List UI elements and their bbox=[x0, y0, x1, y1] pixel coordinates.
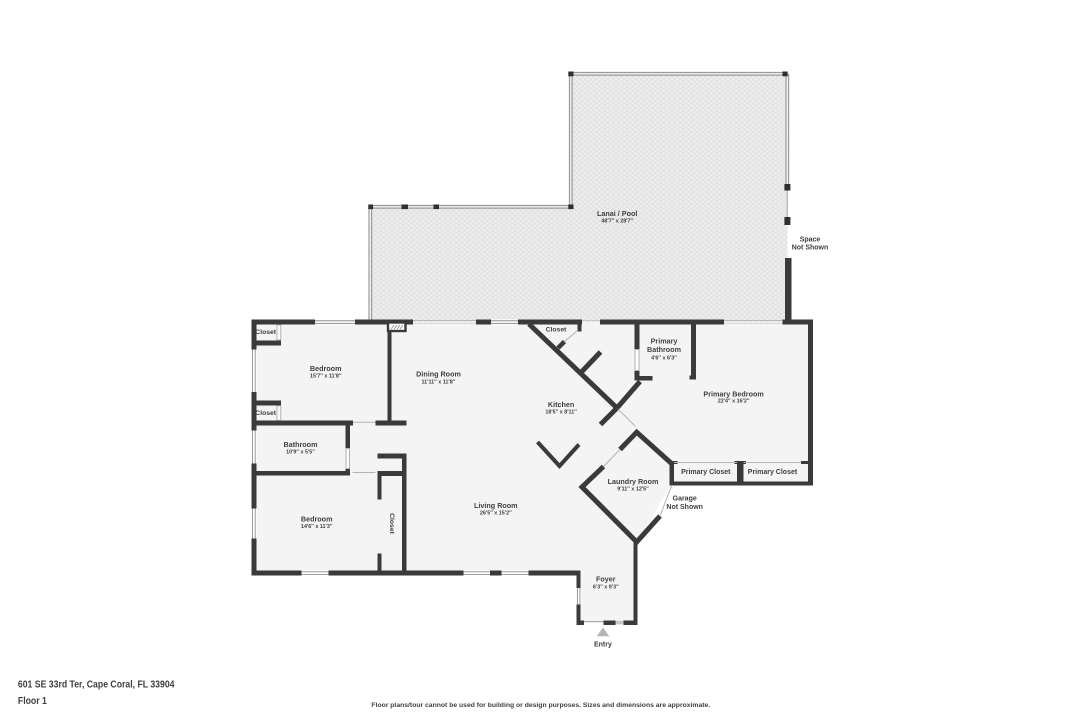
svg-text:15′7″ x 11′8″: 15′7″ x 11′8″ bbox=[310, 373, 342, 379]
svg-text:4′6″ x 6′3″: 4′6″ x 6′3″ bbox=[651, 355, 677, 361]
svg-text:Laundry Room: Laundry Room bbox=[608, 477, 659, 486]
svg-text:Bedroom: Bedroom bbox=[310, 364, 342, 373]
svg-text:Floor 1: Floor 1 bbox=[18, 696, 47, 707]
svg-text:Entry: Entry bbox=[594, 641, 612, 648]
svg-text:Bathroom: Bathroom bbox=[284, 440, 318, 449]
svg-text:9′11″ x 12′5″: 9′11″ x 12′5″ bbox=[617, 487, 649, 493]
svg-text:Primary Closet: Primary Closet bbox=[681, 469, 731, 476]
svg-text:Floor plans/tour cannot be use: Floor plans/tour cannot be used for buil… bbox=[371, 702, 710, 709]
svg-text:26′5″ x 15′2″: 26′5″ x 15′2″ bbox=[480, 511, 512, 517]
svg-text:Closet: Closet bbox=[388, 513, 395, 535]
svg-text:Closet: Closet bbox=[255, 329, 277, 336]
svg-text:Space: Space bbox=[800, 236, 821, 243]
svg-text:Primary Closet: Primary Closet bbox=[748, 469, 798, 476]
svg-text:Bedroom: Bedroom bbox=[301, 514, 333, 523]
svg-text:601 SE 33rd Ter, Cape Coral, F: 601 SE 33rd Ter, Cape Coral, FL 33904 bbox=[18, 680, 175, 691]
svg-text:Garage: Garage bbox=[673, 496, 697, 503]
svg-text:48′7″ x 28′7″: 48′7″ x 28′7″ bbox=[601, 219, 633, 225]
svg-text:Closet: Closet bbox=[546, 327, 568, 334]
svg-text:Closet: Closet bbox=[255, 410, 277, 417]
svg-text:Foyer: Foyer bbox=[596, 574, 616, 583]
svg-text:Living Room: Living Room bbox=[474, 501, 518, 510]
svg-text:22′4″ x 16′2″: 22′4″ x 16′2″ bbox=[718, 399, 750, 405]
svg-text:Dining Room: Dining Room bbox=[416, 370, 461, 379]
svg-text:14′6″ x 11′3″: 14′6″ x 11′3″ bbox=[301, 524, 333, 530]
svg-text:Kitchen: Kitchen bbox=[548, 400, 574, 409]
svg-text:Not Shown: Not Shown bbox=[666, 504, 703, 511]
svg-text:11′11″ x 11′8″: 11′11″ x 11′8″ bbox=[421, 380, 455, 386]
svg-text:6′3″ x 9′3″: 6′3″ x 9′3″ bbox=[593, 585, 619, 591]
svg-text:Bathroom: Bathroom bbox=[647, 345, 681, 354]
svg-text:10′9″ x 5′5″: 10′9″ x 5′5″ bbox=[286, 450, 315, 456]
svg-text:Primary Bedroom: Primary Bedroom bbox=[703, 389, 763, 398]
svg-text:Lanai / Pool: Lanai / Pool bbox=[597, 209, 637, 218]
svg-text:Not Shown: Not Shown bbox=[792, 244, 829, 251]
svg-text:18′5″ x 8′11″: 18′5″ x 8′11″ bbox=[545, 409, 577, 415]
